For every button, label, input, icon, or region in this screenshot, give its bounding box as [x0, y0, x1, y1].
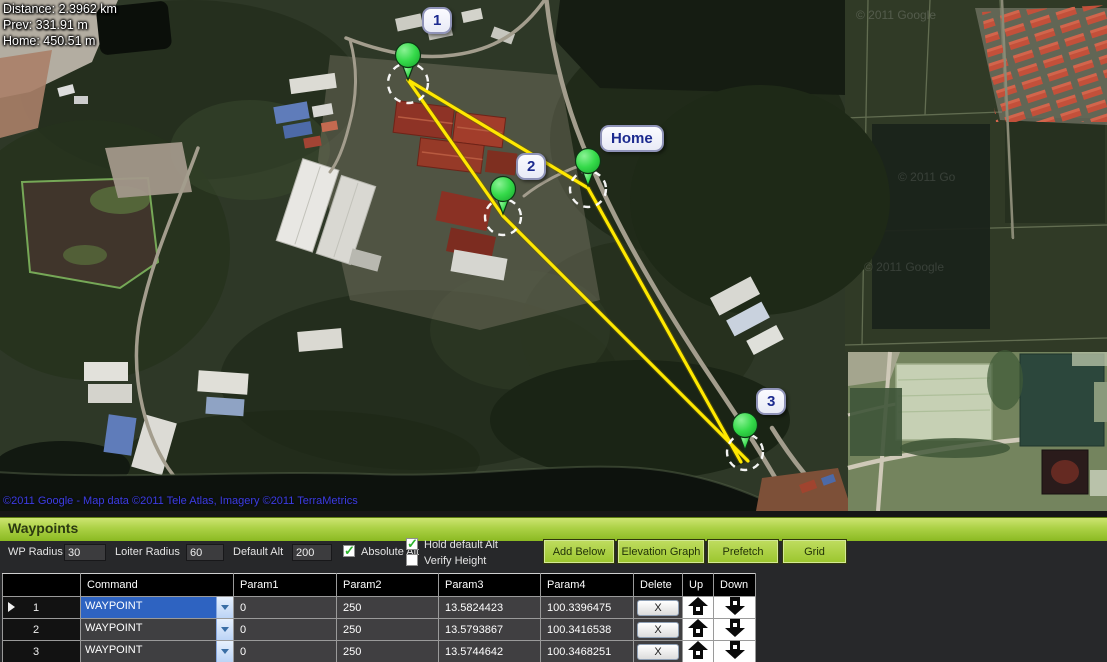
- table-row: 2 WAYPOINT 0 250 13.5793867 100.3416538 …: [3, 619, 756, 641]
- row-1-command-cell: WAYPOINT: [81, 597, 234, 619]
- loiter-radius-input[interactable]: [186, 544, 224, 561]
- row-3-param2[interactable]: 250: [337, 641, 439, 662]
- row-3-delete-cell: X: [634, 641, 683, 662]
- waypoints-header-bar: Waypoints: [0, 517, 1107, 541]
- satellite-imagery: [0, 0, 1107, 511]
- row-1-param4[interactable]: 100.3396475: [541, 597, 634, 619]
- row-2-param2[interactable]: 250: [337, 619, 439, 641]
- table-header-row: Command Param1 Param2 Param3 Param4 Dele…: [3, 574, 756, 597]
- command-dropdown[interactable]: WAYPOINT: [81, 597, 233, 618]
- row-selector-icon: [8, 602, 15, 612]
- row-1-delete-cell: X: [634, 597, 683, 619]
- row-3-down-button[interactable]: [714, 641, 756, 662]
- verify-height-checkbox[interactable]: ✓: [406, 554, 418, 566]
- down-arrow-icon: [724, 619, 746, 637]
- row-2-delete-cell: X: [634, 619, 683, 641]
- distance-stats-overlay: Distance: 2.3962 km Prev: 331.91 m Home:…: [3, 1, 117, 49]
- row-2-command-cell: WAYPOINT: [81, 619, 234, 641]
- delete-button[interactable]: X: [637, 600, 679, 616]
- row-2-header[interactable]: 2: [3, 619, 81, 641]
- row-1-header[interactable]: 1: [3, 597, 81, 619]
- map-attribution: ©2011 Google - Map data ©2011 Tele Atlas…: [3, 495, 358, 507]
- add-below-button[interactable]: Add Below: [544, 540, 614, 563]
- row-2-param4[interactable]: 100.3416538: [541, 619, 634, 641]
- row-3-header[interactable]: 3: [3, 641, 81, 662]
- col-down: Down: [714, 574, 756, 597]
- stat-home: Home: 450.51 m: [3, 33, 117, 49]
- flight-plan-map[interactable]: Distance: 2.3962 km Prev: 331.91 m Home:…: [0, 0, 1107, 511]
- grid-button[interactable]: Grid: [783, 540, 846, 563]
- delete-button[interactable]: X: [637, 644, 679, 660]
- row-2-down-button[interactable]: [714, 619, 756, 641]
- home-label: Home: [600, 125, 664, 152]
- wp-radius-label: WP Radius: [8, 546, 63, 558]
- google-watermark: © 2011 Go: [898, 170, 955, 184]
- prefetch-button[interactable]: Prefetch: [708, 540, 778, 563]
- up-arrow-icon: [687, 619, 709, 637]
- row-3-param3[interactable]: 13.5744642: [439, 641, 541, 662]
- table-row: 1 WAYPOINT 0 250 13.5824423 100.3396475 …: [3, 597, 756, 619]
- mission-planner-window: Distance: 2.3962 km Prev: 331.91 m Home:…: [0, 0, 1107, 662]
- row-1-param1[interactable]: 0: [234, 597, 337, 619]
- row-3-command-cell: WAYPOINT: [81, 641, 234, 662]
- waypoints-panel: Waypoints WP Radius Loiter Radius Defaul…: [0, 511, 1107, 662]
- verify-height-label: Verify Height: [424, 555, 486, 567]
- row-1-down-button[interactable]: [714, 597, 756, 619]
- wp-radius-input[interactable]: [64, 544, 106, 561]
- col-param3: Param3: [439, 574, 541, 597]
- delete-button[interactable]: X: [637, 622, 679, 638]
- row-3-up-button[interactable]: [683, 641, 714, 662]
- hold-default-alt-checkbox[interactable]: ✓: [406, 538, 418, 550]
- default-alt-label: Default Alt: [233, 546, 283, 558]
- down-arrow-icon: [724, 597, 746, 615]
- dropdown-arrow-icon[interactable]: [216, 619, 233, 640]
- waypoint-1-label: 1: [422, 7, 452, 34]
- elevation-graph-button[interactable]: Elevation Graph: [618, 540, 704, 563]
- waypoint-3-label: 3: [756, 388, 786, 415]
- row-1-up-button[interactable]: [683, 597, 714, 619]
- stat-prev: Prev: 331.91 m: [3, 17, 117, 33]
- check-icon: ✓: [344, 543, 355, 559]
- google-watermark: © 2011 Google: [856, 8, 936, 22]
- col-param1: Param1: [234, 574, 337, 597]
- row-3-param1[interactable]: 0: [234, 641, 337, 662]
- row-2-param1[interactable]: 0: [234, 619, 337, 641]
- google-watermark: © 2011 Google: [864, 260, 944, 274]
- col-rowheader: [3, 574, 81, 597]
- up-arrow-icon: [687, 597, 709, 615]
- up-arrow-icon: [687, 641, 709, 659]
- waypoint-2-label: 2: [516, 153, 546, 180]
- hold-default-alt-label: Hold default Alt: [424, 539, 498, 551]
- waypoint-table: Command Param1 Param2 Param3 Param4 Dele…: [2, 573, 756, 662]
- col-delete: Delete: [634, 574, 683, 597]
- row-3-param4[interactable]: 100.3468251: [541, 641, 634, 662]
- col-command: Command: [81, 574, 234, 597]
- command-dropdown[interactable]: WAYPOINT: [81, 641, 233, 662]
- row-2-up-button[interactable]: [683, 619, 714, 641]
- absolute-alt-checkbox[interactable]: ✓: [343, 545, 355, 557]
- col-param4: Param4: [541, 574, 634, 597]
- row-2-param3[interactable]: 13.5793867: [439, 619, 541, 641]
- row-1-param3[interactable]: 13.5824423: [439, 597, 541, 619]
- default-alt-input[interactable]: [292, 544, 332, 561]
- command-dropdown[interactable]: WAYPOINT: [81, 619, 233, 640]
- map-tile-inset: [848, 350, 1107, 511]
- row-1-param2[interactable]: 250: [337, 597, 439, 619]
- stat-distance: Distance: 2.3962 km: [3, 1, 117, 17]
- table-row: 3 WAYPOINT 0 250 13.5744642 100.3468251 …: [3, 641, 756, 662]
- panel-title: Waypoints: [8, 520, 78, 536]
- loiter-radius-label: Loiter Radius: [115, 546, 180, 558]
- col-up: Up: [683, 574, 714, 597]
- down-arrow-icon: [724, 641, 746, 659]
- check-icon: ✓: [407, 536, 418, 552]
- dropdown-arrow-icon[interactable]: [216, 641, 233, 662]
- dropdown-arrow-icon[interactable]: [216, 597, 233, 618]
- col-param2: Param2: [337, 574, 439, 597]
